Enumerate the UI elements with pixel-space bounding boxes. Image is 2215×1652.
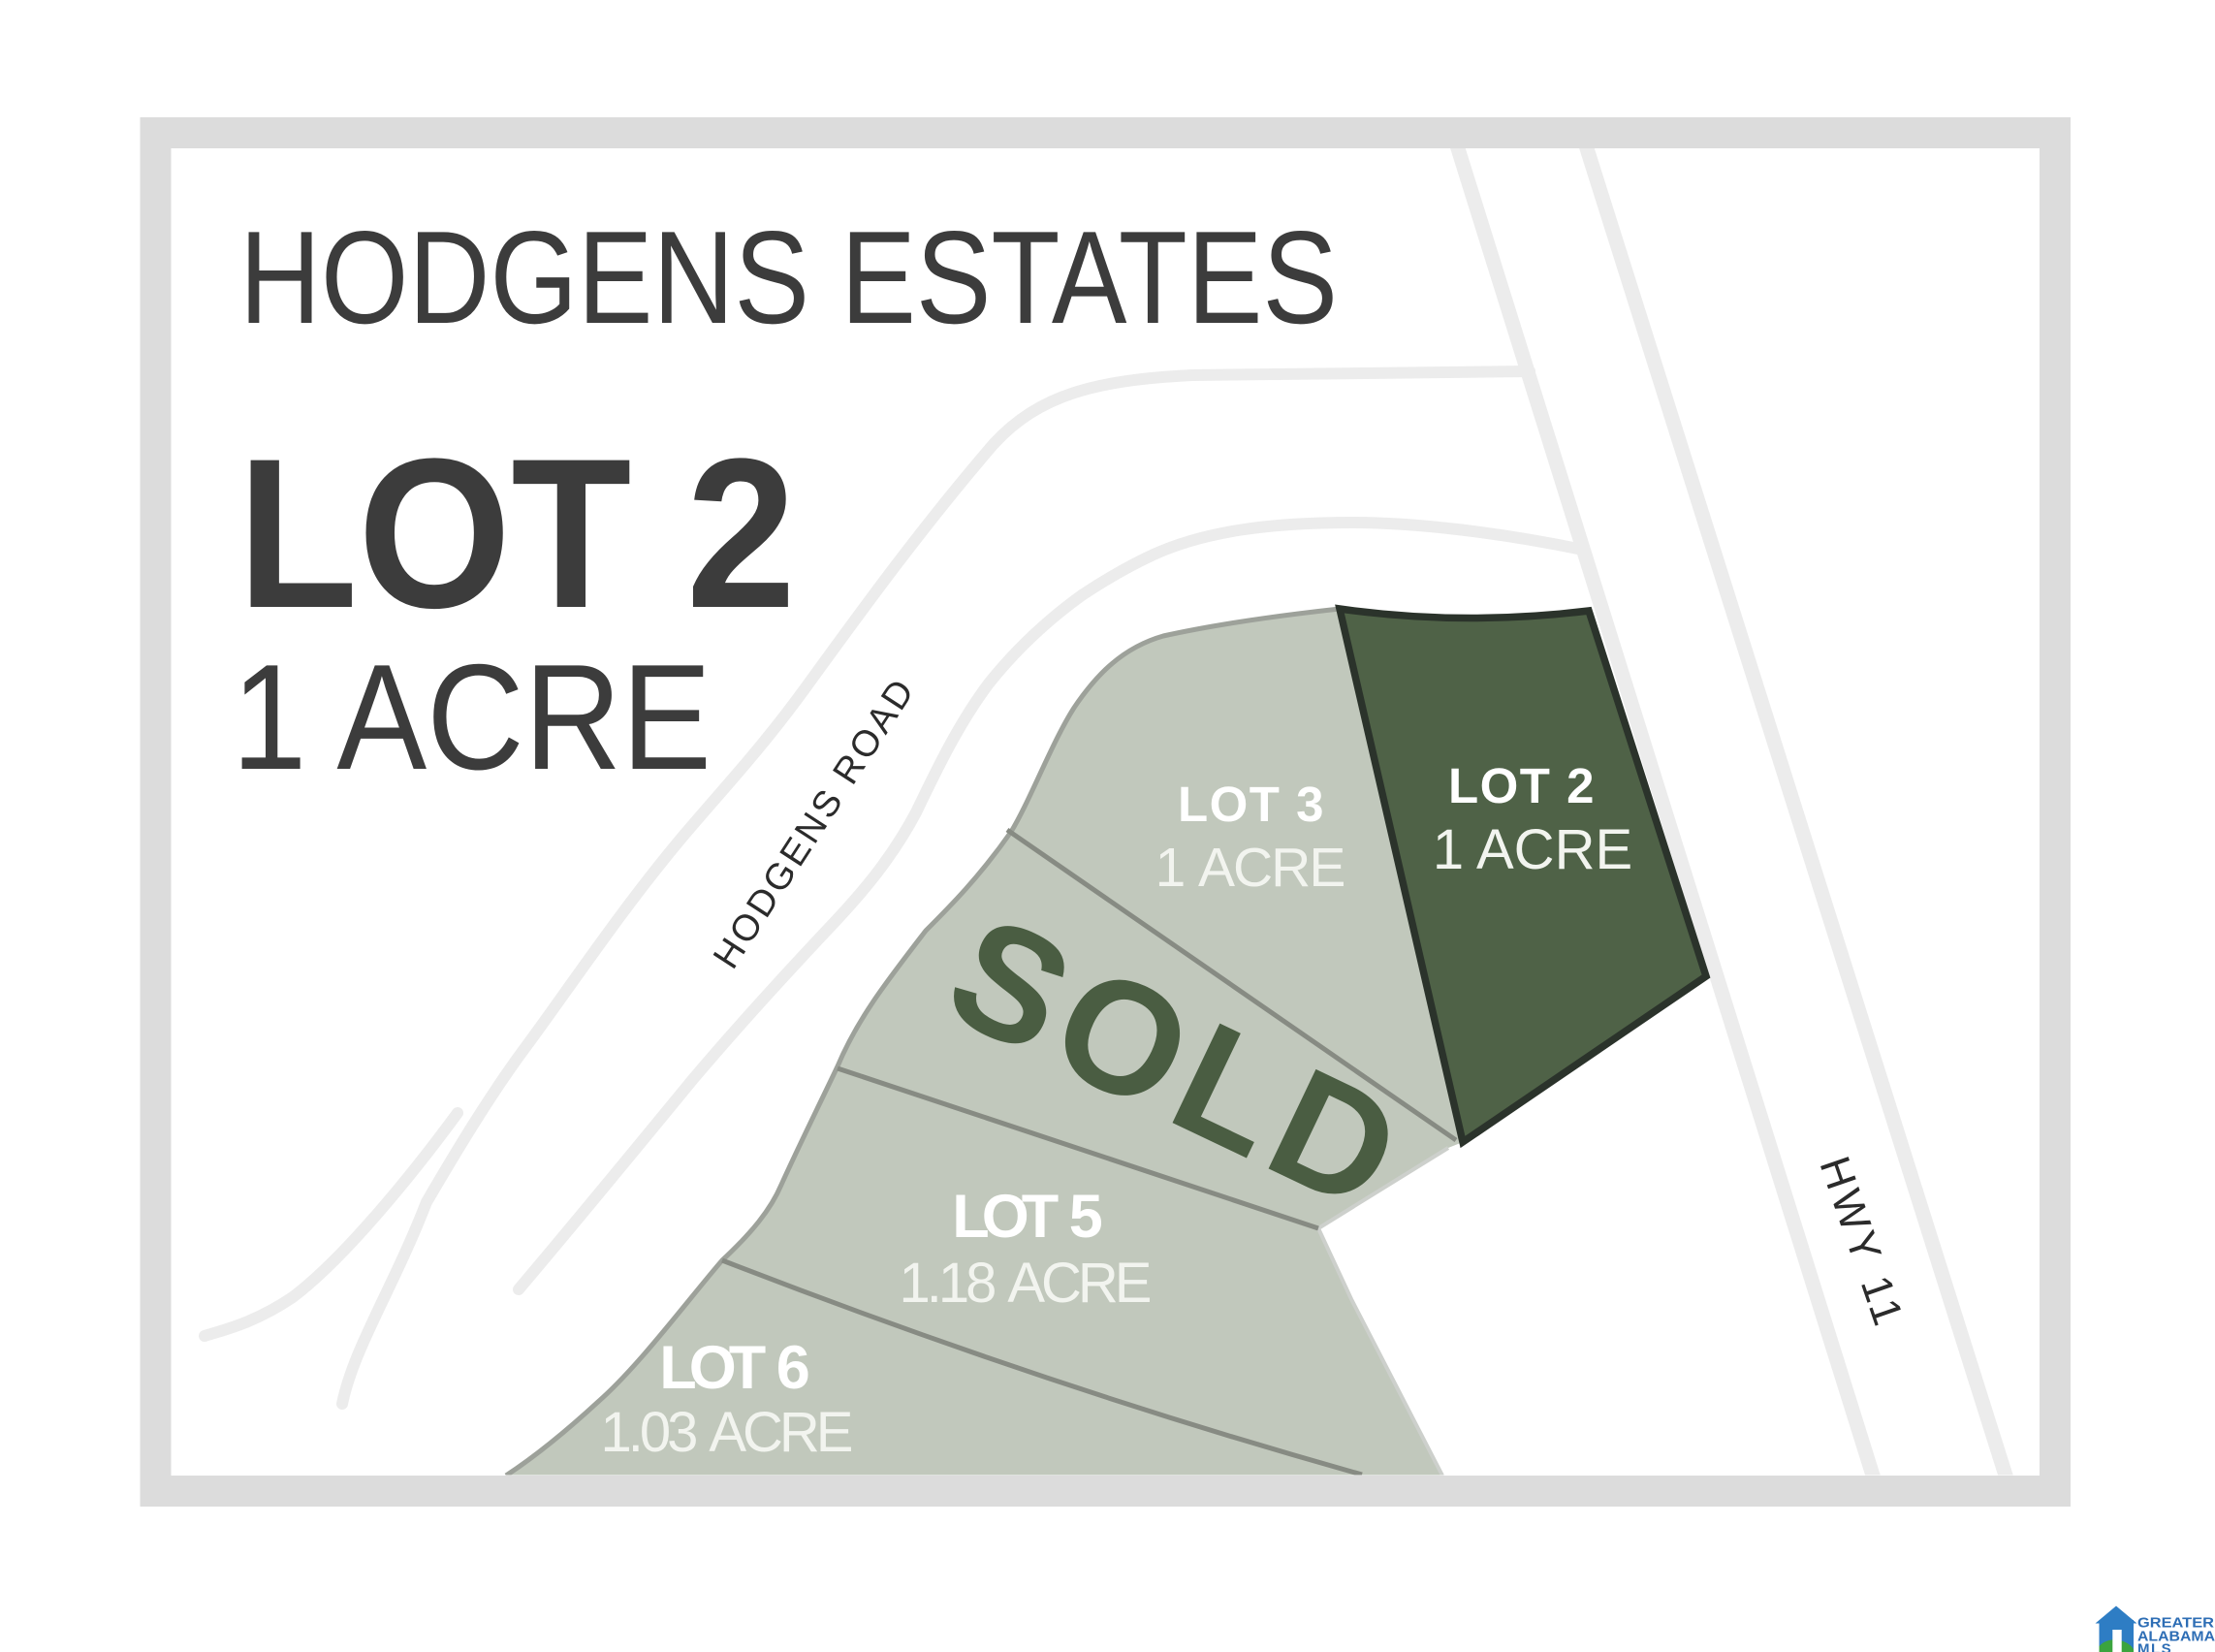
- svg-text:1 ACRE: 1 ACRE: [1433, 818, 1632, 881]
- svg-text:LOT 3: LOT 3: [1178, 777, 1325, 832]
- svg-text:HODGENS ESTATES: HODGENS ESTATES: [239, 204, 1338, 351]
- svg-text:1 ACRE: 1 ACRE: [1155, 837, 1345, 899]
- svg-text:1.18 ACRE: 1.18 ACRE: [900, 1252, 1151, 1315]
- svg-text:MLS: MLS: [2137, 1641, 2172, 1652]
- svg-text:LOT 2: LOT 2: [1448, 758, 1596, 813]
- svg-text:1 ACRE: 1 ACRE: [232, 633, 712, 801]
- svg-text:1.03 ACRE: 1.03 ACRE: [601, 1401, 852, 1464]
- svg-text:LOT 6: LOT 6: [659, 1334, 807, 1402]
- svg-text:LOT 2: LOT 2: [237, 414, 796, 652]
- svg-text:LOT 5: LOT 5: [952, 1183, 1101, 1251]
